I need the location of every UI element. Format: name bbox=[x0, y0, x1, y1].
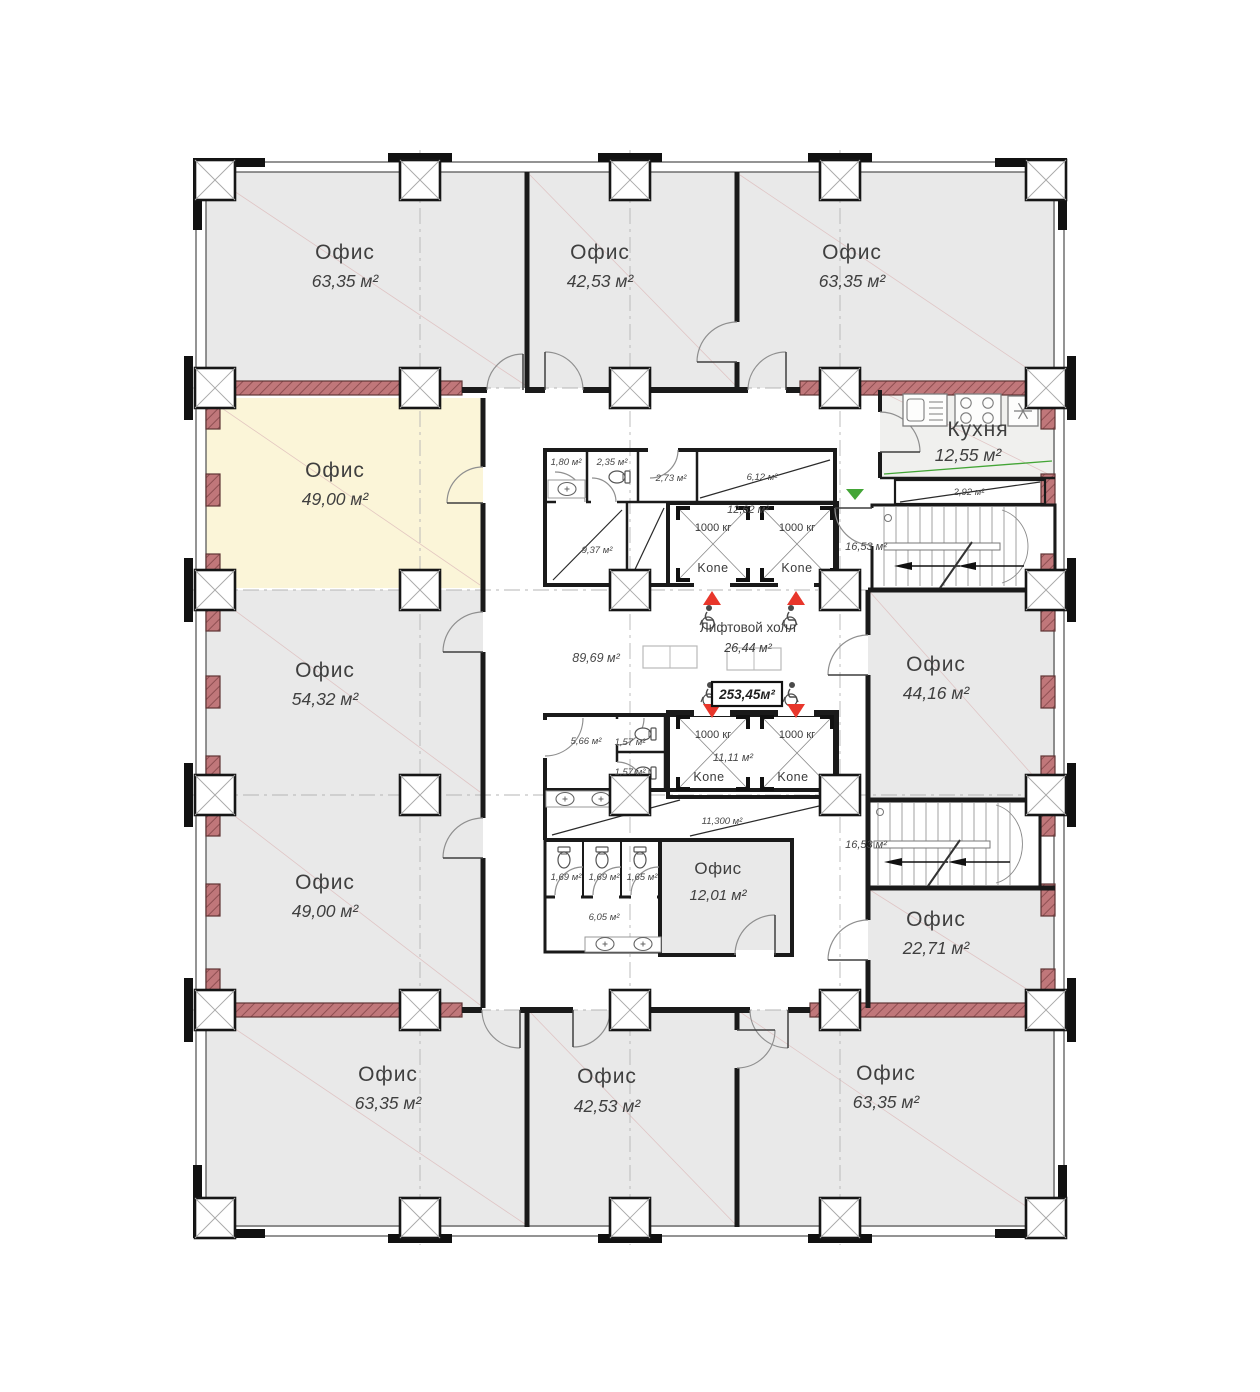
room-label: Офис bbox=[694, 859, 741, 878]
room-label: Офис bbox=[906, 908, 966, 931]
elevator-capacity: 1000 кг bbox=[695, 729, 731, 741]
room-area: 42,53 м² bbox=[574, 1096, 642, 1116]
service-room-area: 6,05 м² bbox=[589, 912, 621, 923]
service-room-area: 1,69 м² bbox=[589, 872, 621, 883]
room-area: 63,35 м² bbox=[819, 271, 887, 291]
service-room-area: 6,12 м² bbox=[747, 472, 779, 483]
room-area: 44,16 м² bbox=[903, 683, 971, 703]
room-area: 54,32 м² bbox=[292, 689, 360, 709]
service-room-area: 5,66 м² bbox=[571, 736, 603, 747]
service-room-area: 1,80 м² bbox=[551, 457, 583, 468]
lift-hall-area: 26,44 м² bbox=[723, 641, 772, 655]
kitchen-area: 12,55 м² bbox=[935, 445, 1003, 465]
elevator-brand: Kone bbox=[697, 561, 728, 575]
service-room-area: 1,57 м² bbox=[615, 767, 647, 778]
stairs-upper-area: 16,53 м² bbox=[845, 541, 887, 553]
elevator-shaft-area: 11,11 м² bbox=[713, 752, 753, 764]
service-corridor-area: 11,300 м² bbox=[702, 816, 744, 827]
room-area: 42,53 м² bbox=[567, 271, 635, 291]
room-label: Офис bbox=[856, 1062, 916, 1085]
room-area: 22,71 м² bbox=[902, 938, 971, 958]
room-label: Офис bbox=[906, 653, 966, 676]
stairs-lower-area: 16,53 м² bbox=[845, 839, 887, 851]
elevator-capacity: 1000 кг bbox=[695, 522, 731, 534]
room-label: Офис bbox=[570, 241, 630, 264]
corridor-area: 89,69 м² bbox=[572, 651, 620, 665]
service-room-area: 1,57 м² bbox=[615, 737, 647, 748]
elevator-capacity: 1000 кг bbox=[779, 729, 815, 741]
lift-hall-label: Лифтовой холл bbox=[700, 620, 796, 635]
room-label-selected: Офис bbox=[305, 459, 365, 482]
floor-plan-svg: Офис 63,35 м² Офис 42,53 м² Офис 63,35 м… bbox=[0, 0, 1260, 1392]
room-area: 63,35 м² bbox=[853, 1092, 921, 1112]
room-area-selected: 49,00 м² bbox=[302, 489, 370, 509]
total-area-value: 253,45м² bbox=[718, 687, 775, 702]
service-room-area: 2,92 м² bbox=[953, 487, 986, 498]
room-label: Офис bbox=[577, 1065, 637, 1088]
floor-plan-page: Офис 63,35 м² Офис 42,53 м² Офис 63,35 м… bbox=[0, 0, 1260, 1392]
elevator-shaft-area: 12,62 м² bbox=[727, 504, 769, 516]
room-label: Офис bbox=[315, 241, 375, 264]
room-area: 49,00 м² bbox=[292, 901, 360, 921]
room-label: Офис bbox=[822, 241, 882, 264]
room-label: Офис bbox=[295, 659, 355, 682]
room-label: Офис bbox=[295, 871, 355, 894]
office-room-bottom-left[interactable] bbox=[206, 1010, 527, 1227]
service-room-area: 1,65 м² bbox=[627, 872, 659, 883]
service-room-area: 2,73 м² bbox=[655, 473, 688, 484]
elevator-capacity: 1000 кг bbox=[779, 522, 815, 534]
sofa bbox=[643, 646, 697, 668]
elevator-brand: Kone bbox=[781, 561, 812, 575]
service-room-area: 9,37 м² bbox=[582, 545, 614, 556]
service-room-area: 1,69 м² bbox=[551, 872, 583, 883]
office-room-bottom-center[interactable] bbox=[527, 1010, 737, 1227]
room-label: Офис bbox=[358, 1063, 418, 1086]
room-area: 63,35 м² bbox=[355, 1093, 423, 1113]
elevator-brand: Kone bbox=[693, 770, 724, 784]
room-area: 12,01 м² bbox=[690, 887, 748, 904]
room-area: 63,35 м² bbox=[312, 271, 380, 291]
kitchen-label: Кухня bbox=[947, 418, 1008, 441]
elevator-brand: Kone bbox=[777, 770, 808, 784]
service-room-area: 2,35 м² bbox=[596, 457, 629, 468]
